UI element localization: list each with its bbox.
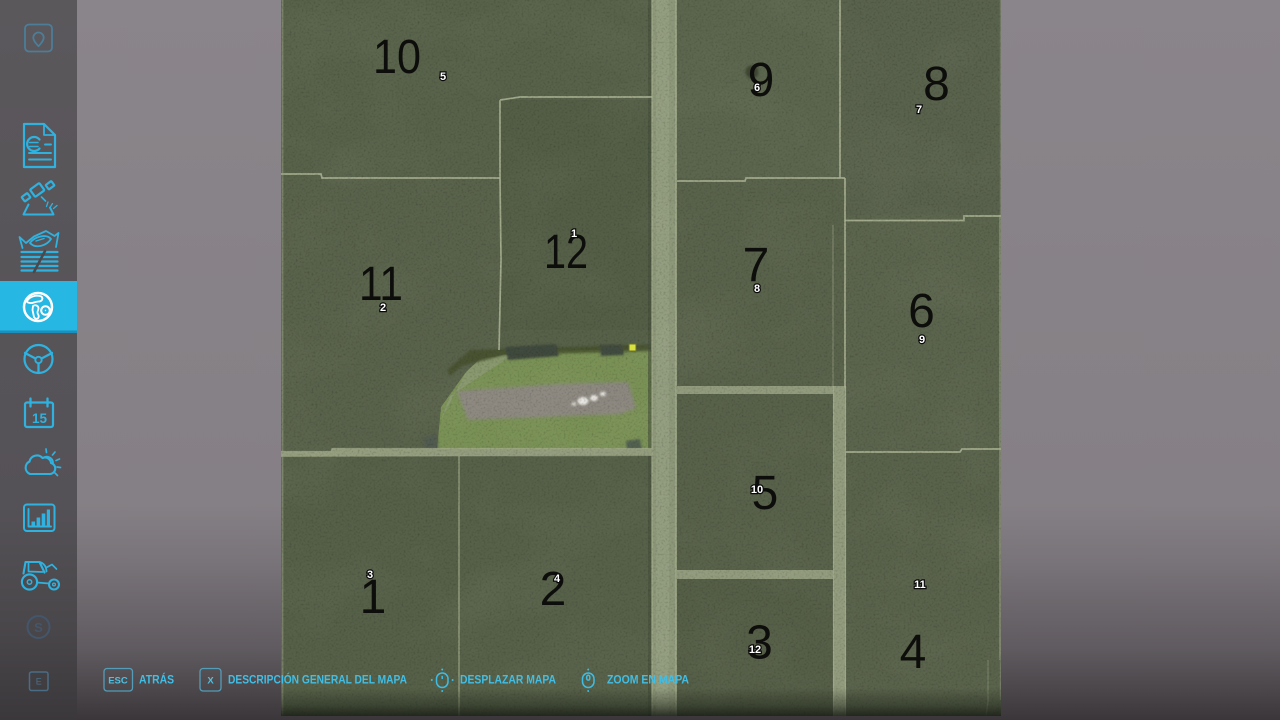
svg-text:12: 12 <box>749 644 761 656</box>
svg-text:10: 10 <box>373 31 421 84</box>
svg-text:6: 6 <box>908 285 935 338</box>
svg-text:2: 2 <box>540 563 567 616</box>
svg-text:4: 4 <box>900 626 927 679</box>
svg-text:4: 4 <box>554 573 561 585</box>
svg-text:8: 8 <box>923 58 950 111</box>
svg-text:X: X <box>207 676 214 687</box>
svg-text:3: 3 <box>367 569 373 581</box>
svg-text:5: 5 <box>440 71 446 83</box>
svg-text:12: 12 <box>544 226 588 279</box>
svg-text:1: 1 <box>571 228 577 240</box>
svg-text:15: 15 <box>32 411 48 426</box>
svg-text:9: 9 <box>748 54 775 107</box>
svg-text:DESCRIPCIÓN GENERAL DEL MAPA: DESCRIPCIÓN GENERAL DEL MAPA <box>228 672 407 687</box>
svg-text:ESC: ESC <box>108 676 128 687</box>
svg-text:2: 2 <box>380 302 386 314</box>
svg-text:7: 7 <box>916 104 922 116</box>
svg-text:E: E <box>36 677 42 687</box>
svg-text:9: 9 <box>919 334 925 346</box>
svg-text:ZOOM EN MAPA: ZOOM EN MAPA <box>607 673 689 687</box>
svg-text:DESPLAZAR MAPA: DESPLAZAR MAPA <box>460 673 556 687</box>
svg-text:8: 8 <box>754 283 760 295</box>
svg-text:3: 3 <box>746 617 773 670</box>
svg-text:S: S <box>34 620 43 635</box>
svg-text:10: 10 <box>751 484 763 496</box>
svg-text:11: 11 <box>914 579 926 591</box>
svg-text:ATRÁS: ATRÁS <box>139 672 174 687</box>
svg-text:6: 6 <box>754 82 760 94</box>
